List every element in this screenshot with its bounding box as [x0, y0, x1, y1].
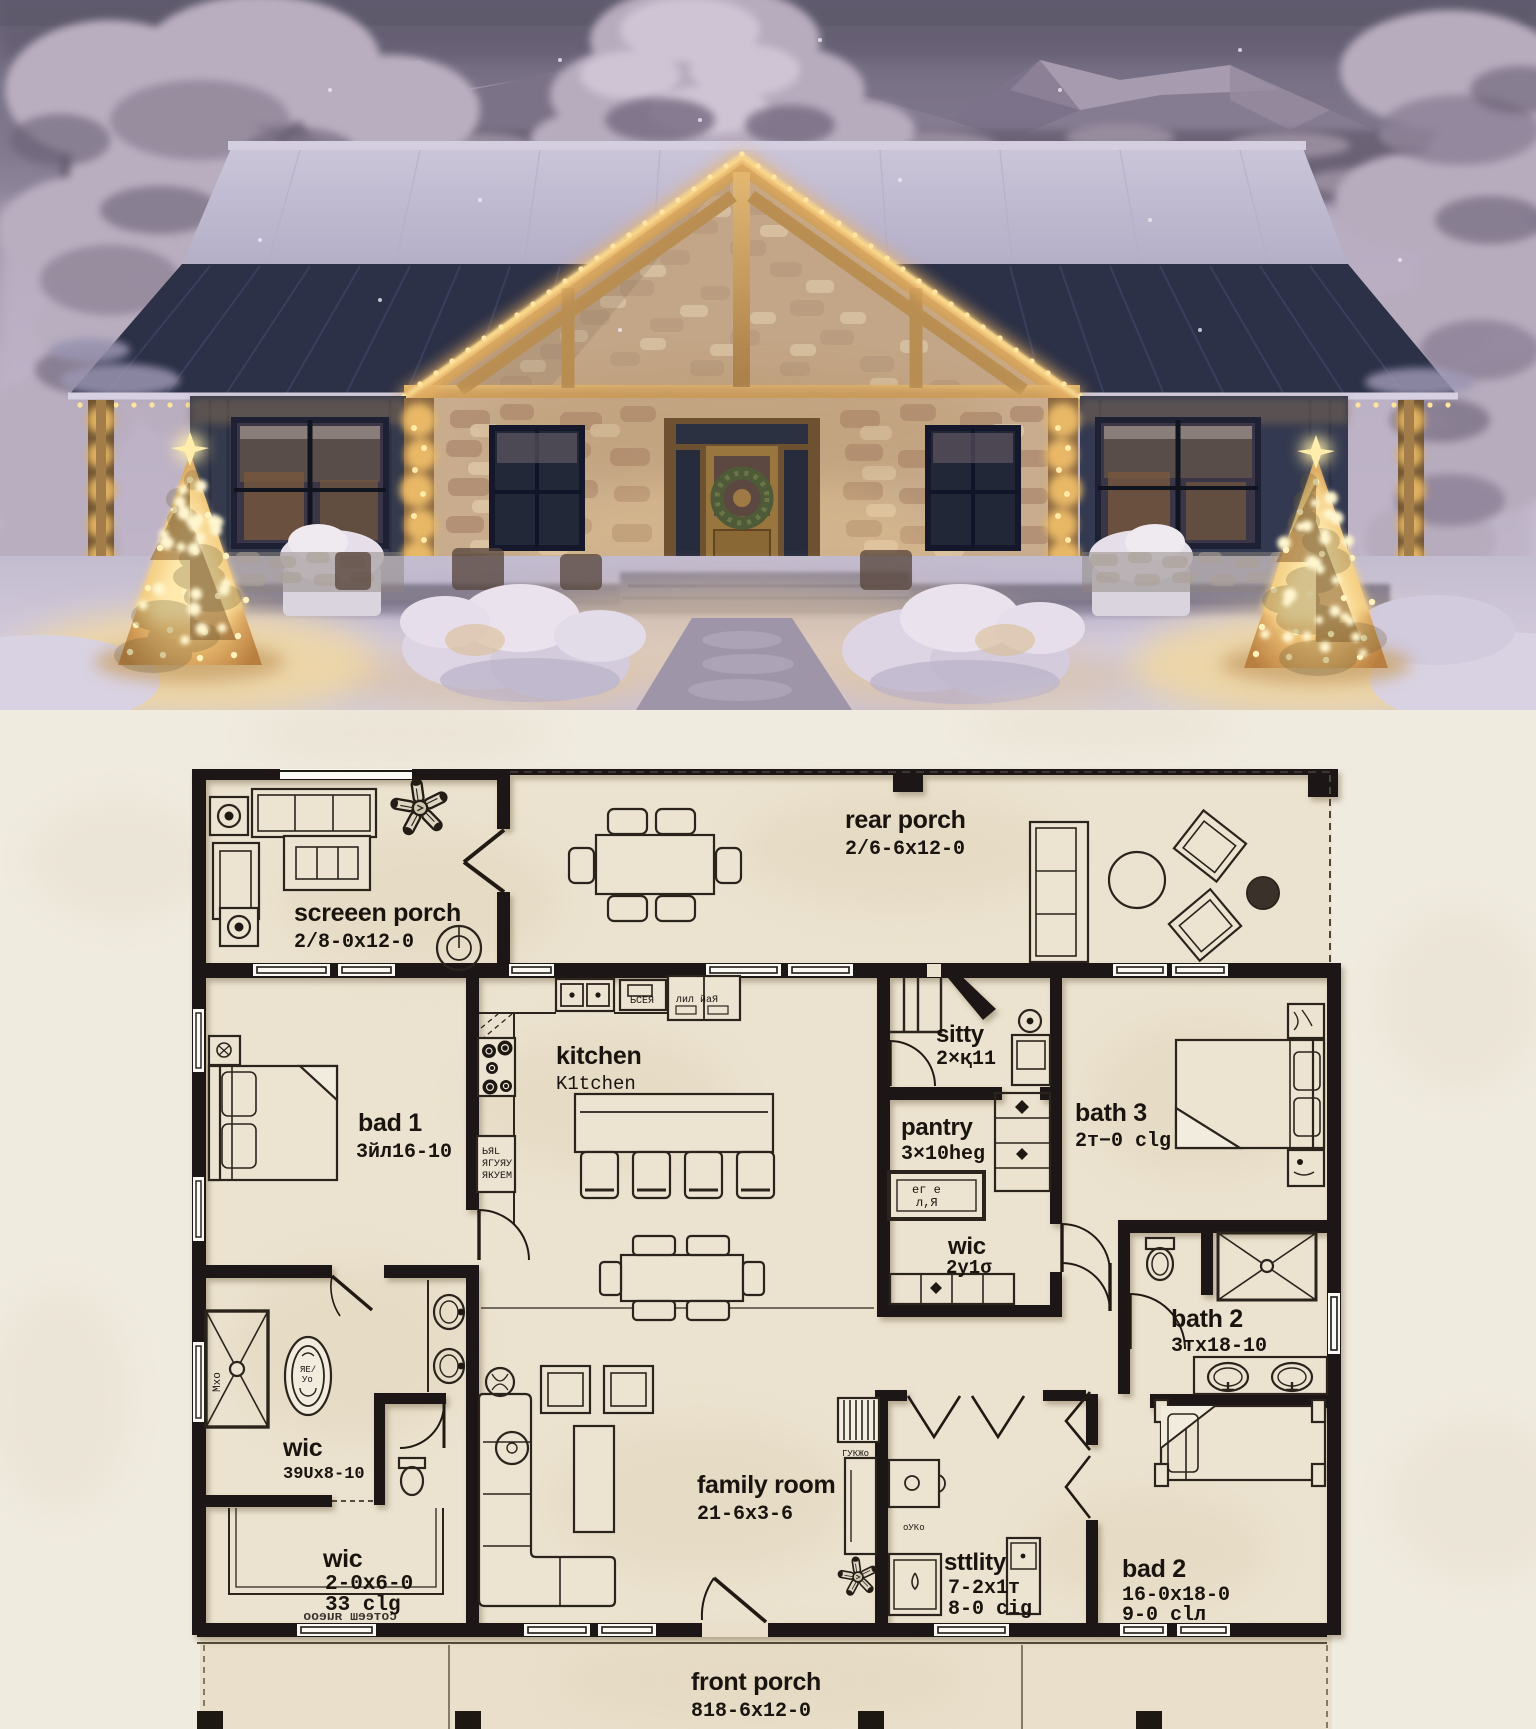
- svg-text:family room: family room: [697, 1471, 835, 1499]
- svg-text:оУКо: оУКо: [903, 1523, 925, 1533]
- svg-text:ЯКУЕМ: ЯКУЕМ: [482, 1171, 512, 1182]
- svg-text:лил йаЯ: лил йаЯ: [676, 994, 718, 1006]
- svg-text:rear porch: rear porch: [845, 806, 966, 834]
- svg-text:kitchen: kitchen: [556, 1042, 641, 1070]
- svg-text:3йл16-10: 3йл16-10: [356, 1141, 452, 1164]
- svg-text:wic: wic: [322, 1545, 363, 1573]
- svg-text:ЬCЕЯ: ЬCЕЯ: [630, 996, 654, 1007]
- svg-text:sttlity: sttlity: [944, 1549, 1007, 1576]
- svg-text:2/6-6x12-0: 2/6-6x12-0: [845, 838, 965, 861]
- svg-text:wic: wic: [947, 1233, 986, 1260]
- svg-text:3×10һeg: 3×10һeg: [901, 1143, 985, 1166]
- svg-text:Мхо: Мхо: [212, 1372, 224, 1392]
- svg-text:3тх18-10: 3тх18-10: [1171, 1335, 1267, 1358]
- svg-text:K1tchen: K1tchen: [556, 1073, 636, 1095]
- svg-text:Уо: Уо: [302, 1375, 313, 1385]
- svg-text:2×қ11: 2×қ11: [936, 1048, 996, 1071]
- svg-text:ЯГУЯУ: ЯГУЯУ: [482, 1159, 512, 1170]
- svg-text:ГУКЖо: ГУКЖо: [842, 1449, 869, 1459]
- svg-text:л,Я: л,Я: [916, 1196, 938, 1210]
- svg-text:screeen porch: screeen porch: [294, 899, 461, 927]
- svg-text:21-6x3-6: 21-6x3-6: [697, 1503, 793, 1526]
- svg-text:front porch: front porch: [691, 1668, 821, 1696]
- svg-text:bad 2: bad 2: [1122, 1555, 1186, 1583]
- svg-text:bath 3: bath 3: [1075, 1099, 1147, 1127]
- svg-text:2-0х6-0: 2-0х6-0: [325, 1573, 413, 1596]
- svg-text:7-2x1т: 7-2x1т: [948, 1577, 1020, 1600]
- svg-text:39Uх8-10: 39Uх8-10: [283, 1465, 365, 1484]
- svg-text:818-6x12-0: 818-6x12-0: [691, 1700, 811, 1723]
- svg-text:ЯЕ/: ЯЕ/: [300, 1365, 316, 1375]
- svg-text:ег е: ег е: [912, 1183, 941, 1197]
- svg-text:2т−0 clg: 2т−0 clg: [1075, 1130, 1171, 1153]
- svg-text:9-0 clл: 9-0 clл: [1122, 1604, 1206, 1627]
- svg-text:bad 1: bad 1: [358, 1109, 422, 1137]
- svg-text:coтeeш яuеoо: coтeeш яuеoо: [303, 1609, 397, 1624]
- svg-text:2у1σ: 2у1σ: [946, 1257, 992, 1279]
- svg-text:8-0 cіg: 8-0 cіg: [948, 1598, 1032, 1621]
- svg-text:ЬЯL: ЬЯL: [482, 1147, 500, 1158]
- svg-text:sitty: sitty: [936, 1021, 985, 1048]
- svg-text:bath 2: bath 2: [1171, 1305, 1243, 1333]
- svg-text:wic: wic: [282, 1434, 323, 1462]
- svg-text:pantry: pantry: [901, 1114, 974, 1141]
- svg-text:2/8-0x12-0: 2/8-0x12-0: [294, 931, 414, 954]
